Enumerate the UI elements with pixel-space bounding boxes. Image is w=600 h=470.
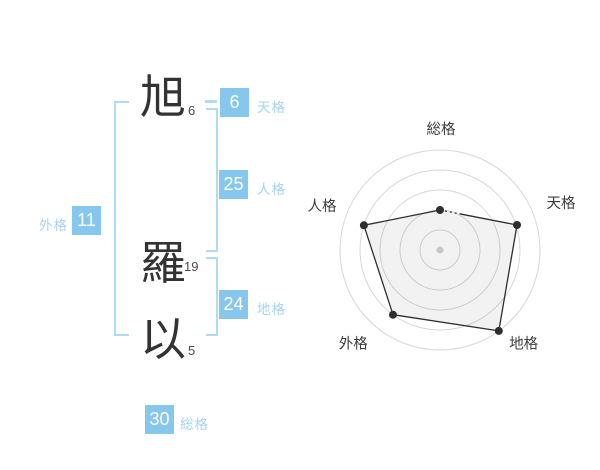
radar-axis-label-0: 総格 <box>427 121 456 138</box>
radar-axis-label-4: 人格 <box>308 198 337 215</box>
radar-point-0 <box>436 206 444 214</box>
radar-data-polygon <box>364 210 517 331</box>
radar-point-4 <box>360 221 368 229</box>
radar-point-1 <box>513 221 521 229</box>
radar-axis-label-1: 天格 <box>547 195 576 212</box>
radar-axis-label-2: 地格 <box>509 336 538 353</box>
radar-point-3 <box>389 311 397 319</box>
radar-point-2 <box>495 327 503 335</box>
name-fortune-panel: 旭 6 羅 19 以 5 6 天格 25 人格 24 地格 外格 11 30 総… <box>0 0 600 470</box>
radar-axis-label-3: 外格 <box>339 336 368 353</box>
radar-center-dot <box>437 247 444 254</box>
fortune-radar-chart: 総格天格地格外格人格 <box>0 0 600 470</box>
